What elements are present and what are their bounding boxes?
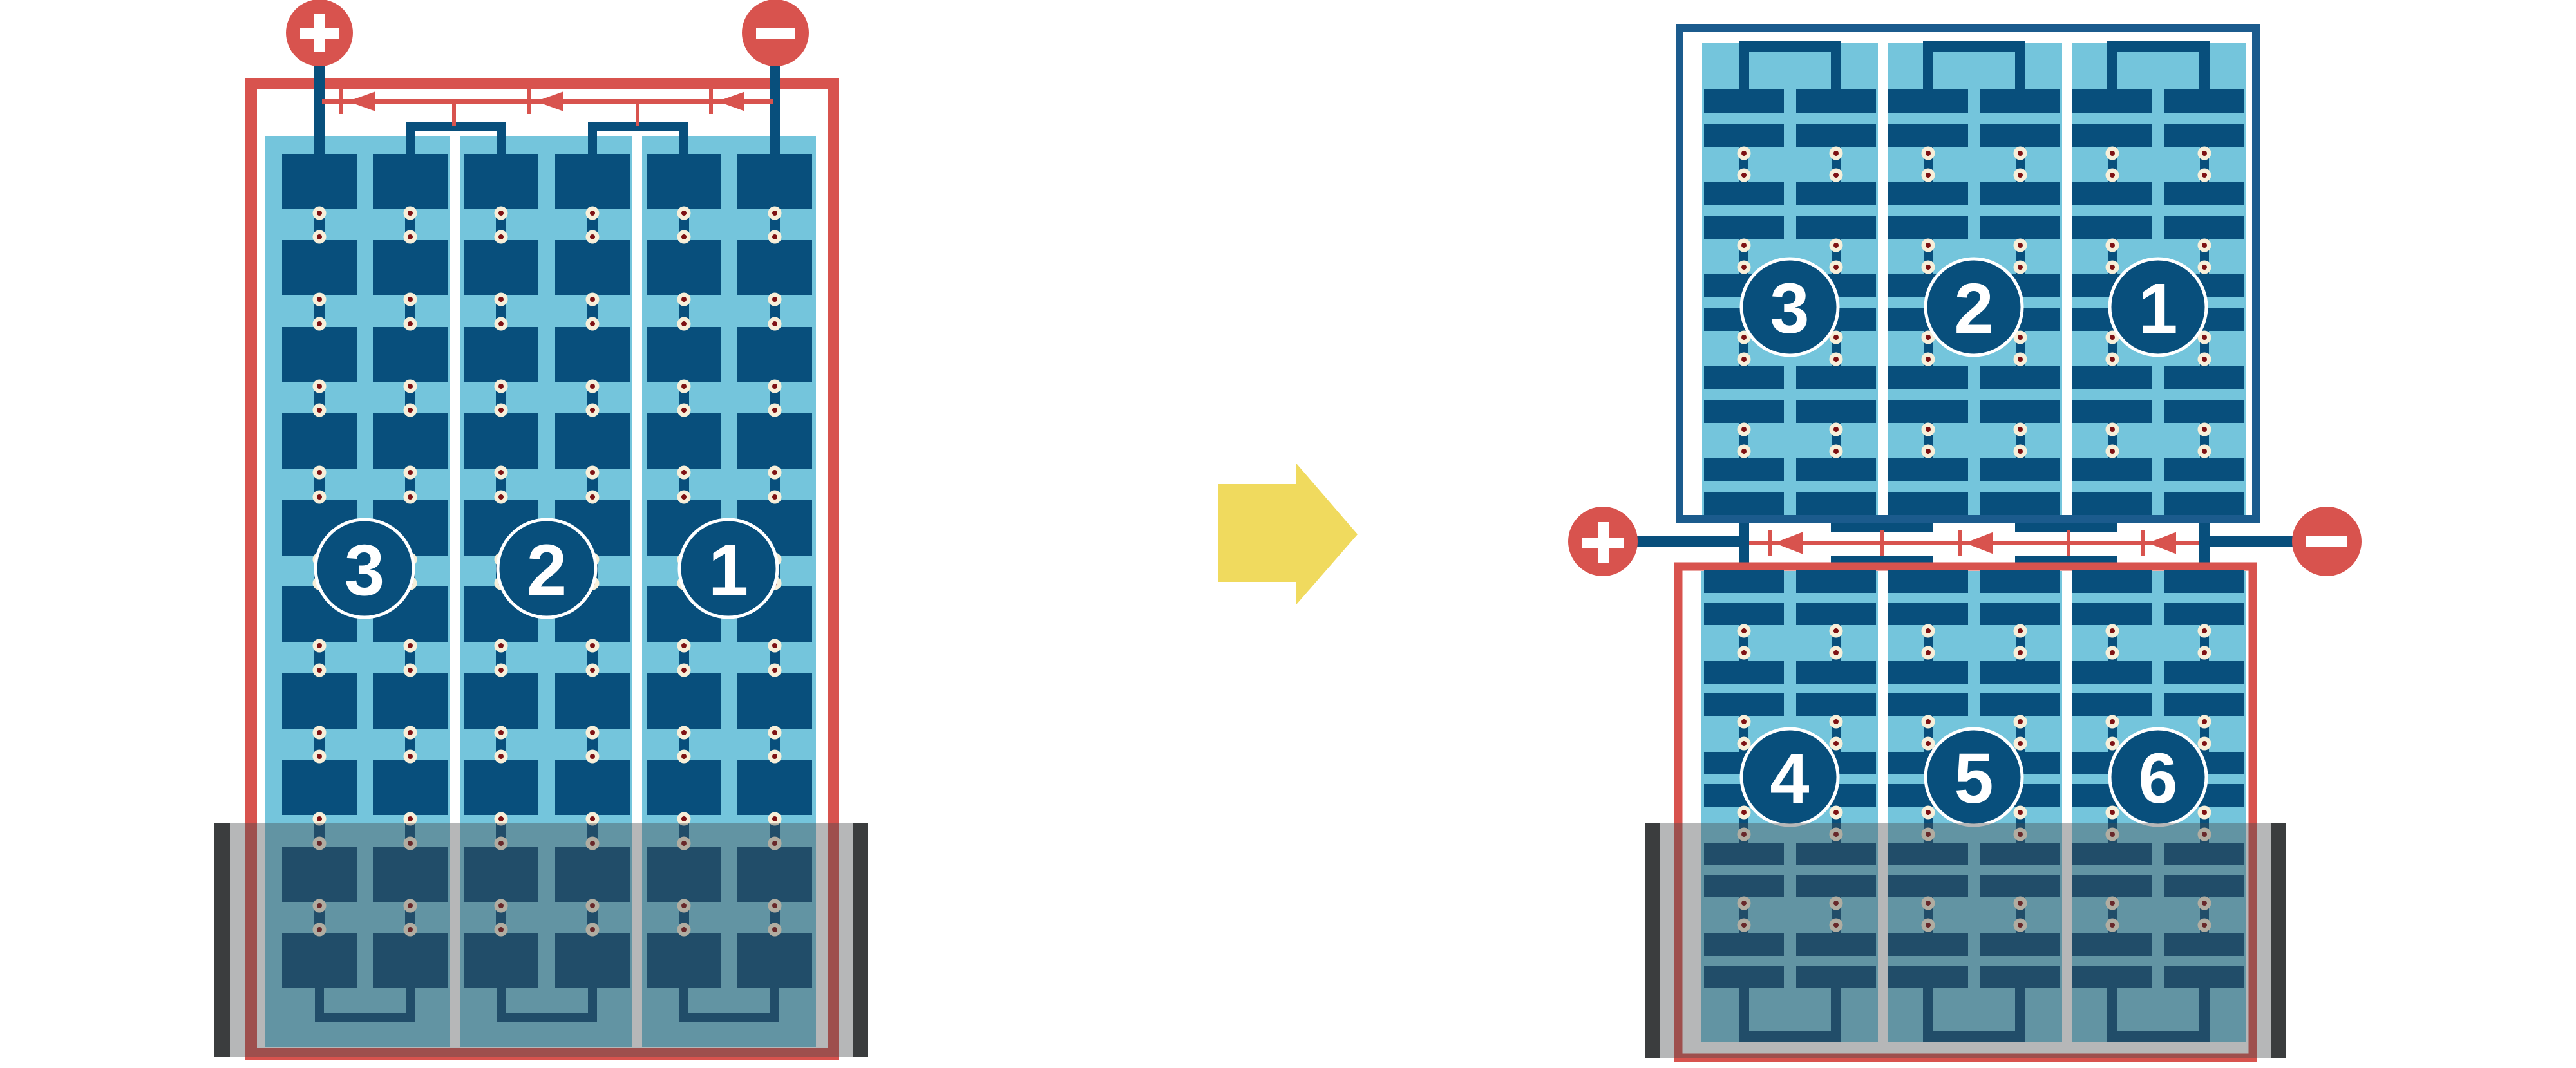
svg-text:2: 2: [1954, 269, 1993, 348]
svg-text:5: 5: [1954, 739, 1993, 818]
svg-text:3: 3: [345, 530, 384, 610]
svg-text:2: 2: [527, 530, 567, 610]
svg-text:3: 3: [1770, 269, 1809, 348]
svg-text:4: 4: [1770, 739, 1809, 818]
svg-text:1: 1: [2138, 269, 2177, 348]
svg-text:1: 1: [708, 530, 748, 610]
svg-text:6: 6: [2138, 739, 2177, 818]
